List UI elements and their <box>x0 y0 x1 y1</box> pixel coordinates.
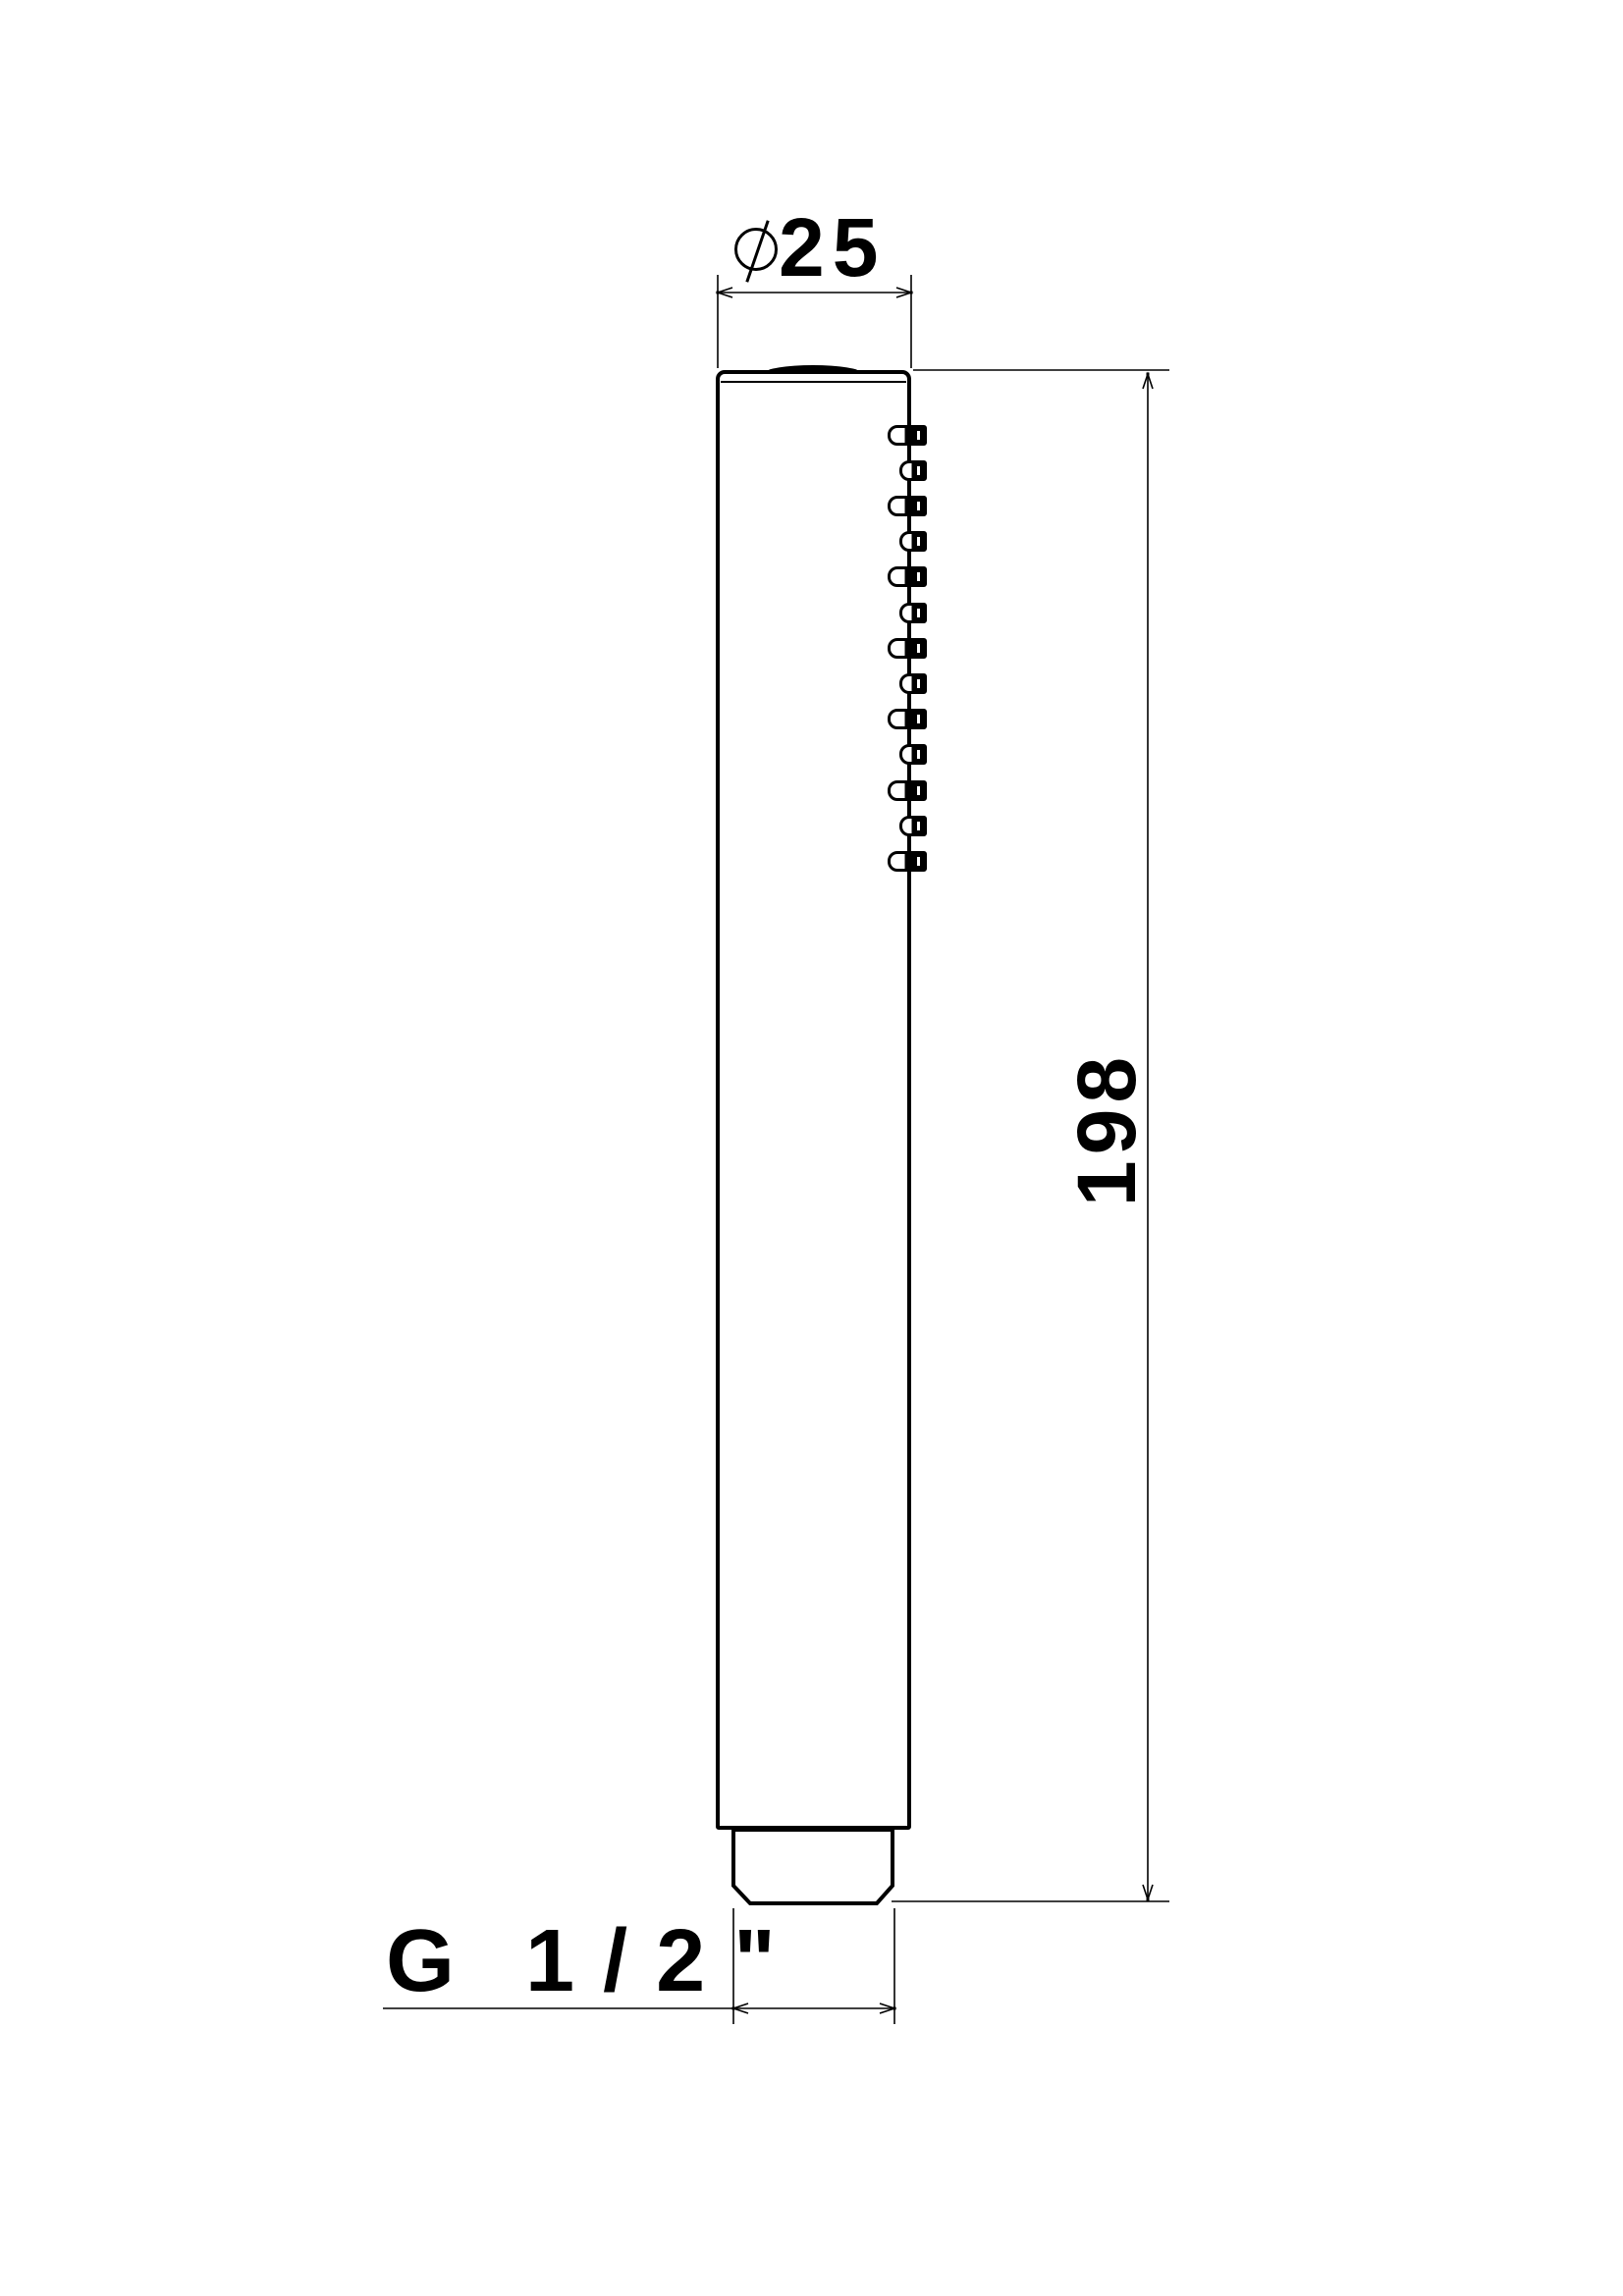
nozzle-slit <box>917 857 920 866</box>
nozzle-slit <box>917 572 920 581</box>
thread-prefix: G <box>386 1912 455 2010</box>
diameter-symbol-icon <box>734 228 778 271</box>
nozzle-long <box>888 566 927 587</box>
drawing-canvas: 25 198 G1 / 2 " <box>0 0 1623 2296</box>
cap-seam-line <box>721 381 906 383</box>
nozzle-short <box>899 673 927 694</box>
diameter-dimension-value: 25 <box>779 206 886 289</box>
nozzle-slit <box>917 609 920 617</box>
nozzle-slit <box>917 466 920 475</box>
nozzle-short <box>899 531 927 552</box>
nozzle-slit <box>917 750 920 759</box>
height-dimension-value: 198 <box>1065 1031 1148 1227</box>
nozzle-long <box>888 851 927 872</box>
nozzle-long <box>888 425 927 446</box>
nozzle-slit <box>917 431 920 440</box>
thread-size: 1 / 2 " <box>525 1912 778 2010</box>
nozzle-slit <box>917 715 920 723</box>
nozzle-slit <box>917 679 920 688</box>
nozzle-long <box>888 496 927 516</box>
nozzle-slit <box>917 644 920 653</box>
nozzle-slit <box>917 786 920 795</box>
shower-body-outline <box>716 370 911 1830</box>
nozzle-slit <box>917 502 920 510</box>
thread-connector-outline <box>733 1830 893 1903</box>
nozzle-short <box>899 744 927 765</box>
nozzle-short <box>899 460 927 481</box>
nozzle-long <box>888 709 927 729</box>
thread-dimension-label: G1 / 2 " <box>386 1917 778 2005</box>
nozzle-long <box>888 780 927 801</box>
nozzle-short <box>899 816 927 836</box>
nozzle-slit <box>917 537 920 546</box>
nozzle-short <box>899 603 927 623</box>
nozzle-long <box>888 638 927 659</box>
nozzle-slit <box>917 822 920 830</box>
